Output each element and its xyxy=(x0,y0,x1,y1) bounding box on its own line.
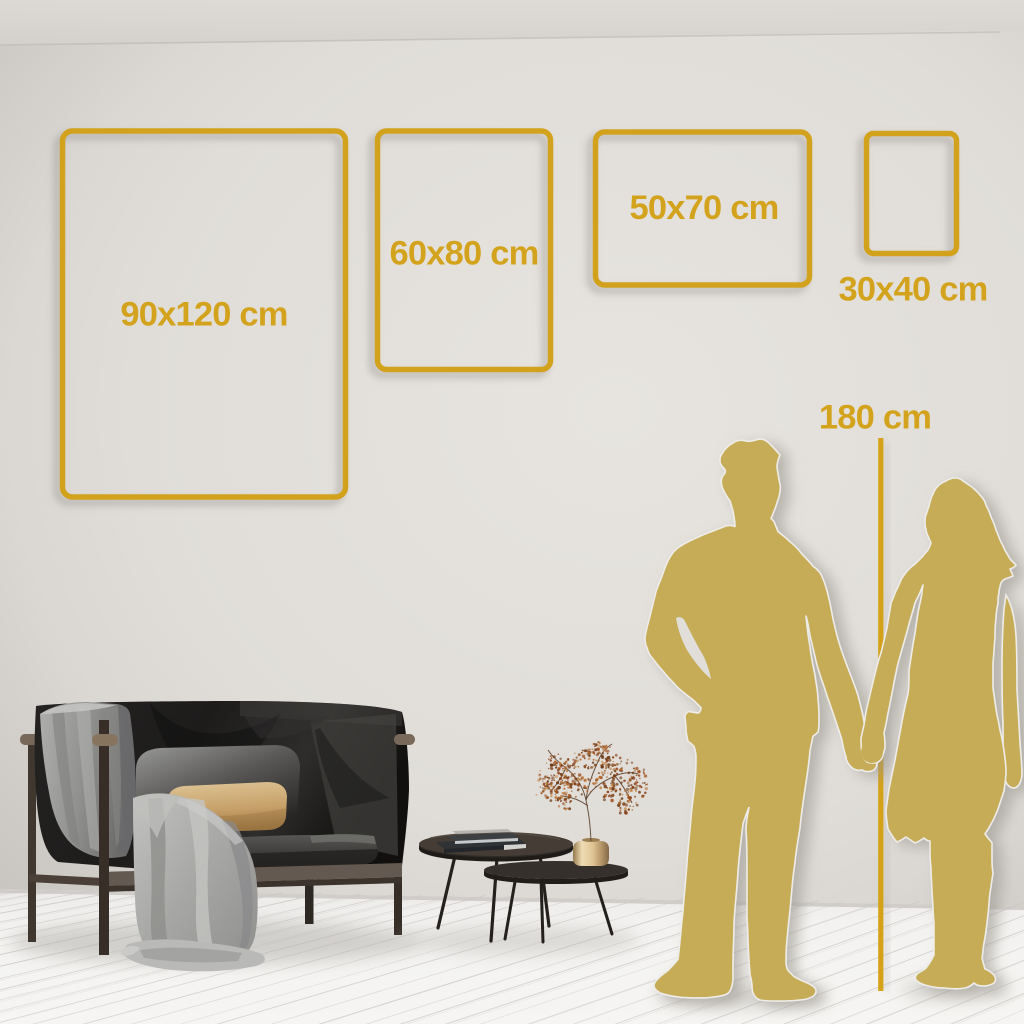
svg-text:60x80 cm: 60x80 cm xyxy=(390,235,539,273)
svg-text:180 cm: 180 cm xyxy=(819,399,931,437)
svg-text:30x40 cm: 30x40 cm xyxy=(839,271,988,309)
svg-text:50x70 cm: 50x70 cm xyxy=(630,189,779,227)
svg-text:90x120 cm: 90x120 cm xyxy=(120,296,287,334)
